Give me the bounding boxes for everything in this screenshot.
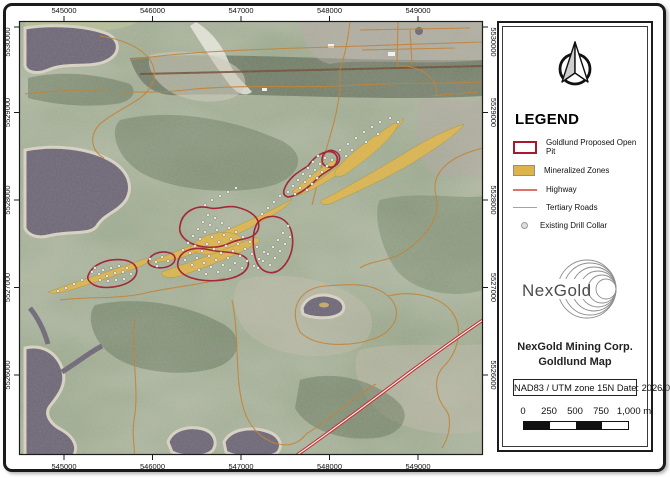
legend-item-label: Existing Drill Collar: [540, 221, 607, 230]
y-label: 5527000: [3, 273, 12, 302]
scale-label: 750: [593, 406, 609, 417]
legend: LEGEND Goldlund Proposed Open Pit Minera…: [513, 111, 637, 239]
satellite-basemap: [19, 21, 483, 462]
map-title-line1: NexGold Mining Corp.: [517, 340, 633, 354]
scale-bar-segments: [523, 421, 629, 430]
legend-item-label: Goldlund Proposed Open Pit: [546, 138, 637, 156]
legend-item-label: Tertiary Roads: [546, 203, 598, 212]
y-label: 5526000: [3, 360, 12, 389]
scale-label: 500: [567, 406, 583, 417]
scale-label: 250: [541, 406, 557, 417]
scale-label: 0: [520, 406, 525, 417]
x-label: 549000: [405, 462, 430, 471]
legend-item-label: Mineralized Zones: [544, 166, 609, 175]
nexgold-logo: NexGold: [514, 257, 636, 326]
x-label: 547000: [228, 462, 253, 471]
y-label: 5526000: [489, 360, 497, 389]
map-title: NexGold Mining Corp. Goldlund Map: [517, 340, 633, 369]
x-label: 548000: [317, 462, 342, 471]
x-label: 546000: [140, 462, 165, 471]
highway-line-icon: [513, 189, 537, 191]
x-label: 545000: [51, 6, 76, 15]
y-label: 5528000: [3, 185, 12, 214]
open-pit-swatch-icon: [513, 141, 537, 154]
x-label: 546000: [140, 6, 165, 15]
drill-collar-dot-icon: [521, 222, 528, 229]
legend-item-highway: Highway: [513, 185, 637, 194]
map-surround-panel: LEGEND Goldlund Proposed Open Pit Minera…: [497, 21, 653, 452]
legend-item-label: Highway: [546, 185, 577, 194]
x-label: 549000: [405, 6, 430, 15]
scale-bar: 0 250 500 750 1,000 m: [505, 406, 645, 438]
map-title-line2: Goldlund Map: [517, 355, 633, 369]
y-label: 5528000: [489, 185, 497, 214]
x-label: 545000: [51, 462, 76, 471]
y-label: 5529000: [3, 98, 12, 127]
map-canvas: 545000 546000 547000 548000 549000 54500…: [0, 0, 497, 478]
legend-title: LEGEND: [515, 111, 637, 128]
x-label: 548000: [317, 6, 342, 15]
north-arrow-icon: [552, 39, 598, 91]
logo-wordmark: NexGold: [522, 281, 592, 300]
mineralized-zone-swatch-icon: [513, 165, 535, 176]
legend-item-tertiary-roads: Tertiary Roads: [513, 203, 637, 212]
legend-item-mineralized-zones: Mineralized Zones: [513, 165, 637, 176]
y-label: 5530000: [489, 27, 497, 56]
legend-item-drill-collar: Existing Drill Collar: [513, 221, 637, 230]
legend-item-open-pit: Goldlund Proposed Open Pit: [513, 138, 637, 156]
y-label: 5530000: [3, 27, 12, 56]
y-label: 5527000: [489, 273, 497, 302]
scale-label: 1,000 m: [617, 406, 651, 417]
crs-datum-label: NAD83 / UTM zone 15N Date: 2026/01/26: [513, 379, 637, 396]
x-label: 547000: [228, 6, 253, 15]
y-label: 5529000: [489, 98, 497, 127]
tertiary-road-line-icon: [513, 207, 537, 208]
